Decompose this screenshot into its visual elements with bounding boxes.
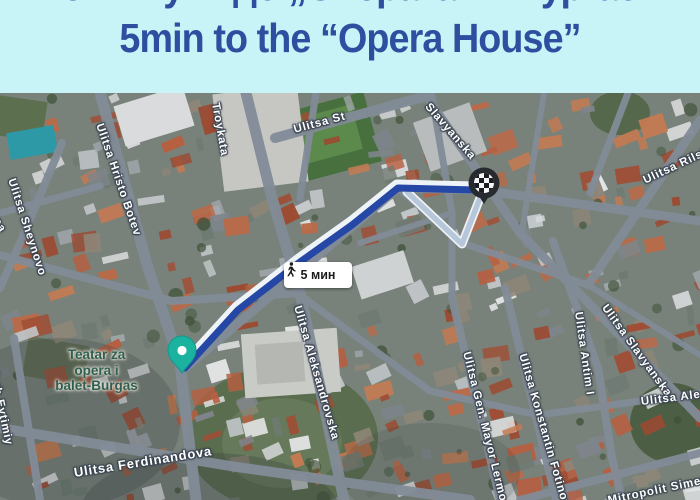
walking-icon xyxy=(284,262,297,277)
route-duration-text: 5 мин xyxy=(301,268,336,282)
screenshot-root: 5 минути до „Операта“ в Бургас 5min to t… xyxy=(0,0,700,500)
poi-line-2: opera i xyxy=(24,363,169,379)
title-line1-cropped: 5 минути до „Операта“ в Бургас xyxy=(28,0,672,10)
poi-label-opera-theatre: Teatar za opera i balet-Burgas xyxy=(24,347,169,394)
map-view[interactable]: Ulitsa Hristo Botev Troykata Ulitsa St S… xyxy=(0,93,700,500)
poi-line-3: balet-Burgas xyxy=(24,378,169,394)
title-line2: 5min to the “Opera House” xyxy=(28,15,672,62)
title-banner: 5 минути до „Операта“ в Бургас 5min to t… xyxy=(0,0,700,93)
route-duration-badge[interactable]: 5 мин xyxy=(284,262,352,288)
poi-line-1: Teatar za xyxy=(24,347,169,363)
